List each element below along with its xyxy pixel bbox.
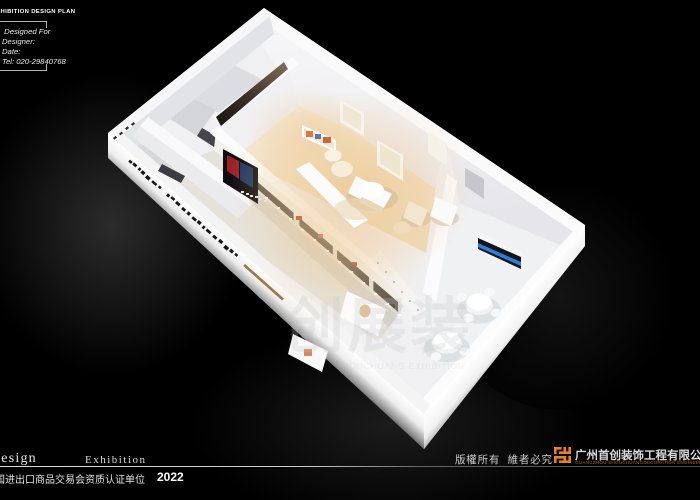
svg-text:SHOUCHUANG EXHIBITION: SHOUCHUANG EXHIBITION	[336, 361, 465, 371]
svg-text:创展装: 创展装	[284, 293, 473, 360]
